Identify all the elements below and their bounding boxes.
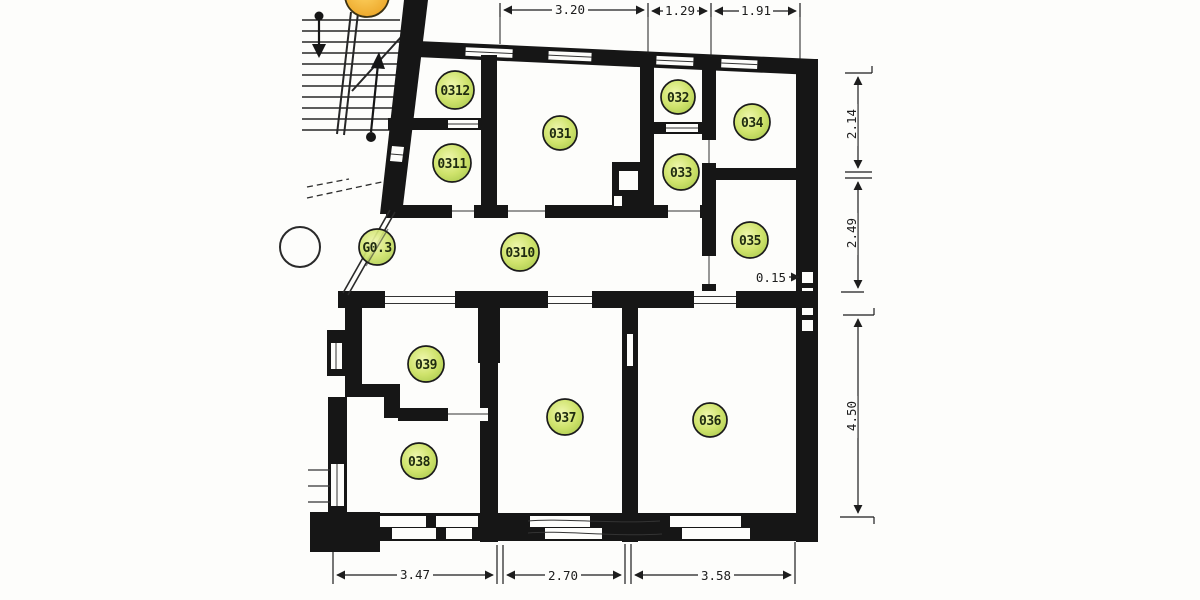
room-badge-034: 034: [734, 104, 770, 140]
wall-039-038: [398, 408, 498, 421]
dimension-bottom-2: 2.70: [548, 568, 578, 583]
room-badge-037: 037: [547, 399, 583, 435]
dimension-right-2: 2.49: [844, 218, 859, 248]
room-badge-g03: G0.3: [359, 229, 395, 266]
dimension-top-3: 1.91: [741, 3, 771, 18]
room-badge-text: 036: [699, 414, 722, 429]
room-badge-text: 035: [739, 234, 761, 249]
room-badge-text: 033: [670, 166, 692, 181]
dimension-wall-thickness: 0.15: [756, 270, 786, 285]
wall-033-034: [702, 59, 716, 293]
room-badge-text: 0312: [440, 84, 469, 99]
room-badge-text: 032: [667, 91, 689, 106]
wall-037-036: [622, 291, 638, 542]
wall-thickness-callout: 0.15: [756, 270, 799, 285]
stair-down-arrow: [312, 12, 326, 59]
room-badge-text: G0.3: [362, 241, 391, 256]
wall-031-032: [640, 57, 654, 205]
wall-corridor-bottom: [338, 291, 818, 308]
wall-left-lower-block: [327, 291, 400, 542]
wall-top-outer: [416, 41, 814, 75]
left-window-sill-lines: [308, 470, 330, 502]
wall-corridor-top: [386, 205, 716, 218]
room-badge-text: 0310: [505, 246, 535, 261]
wall-034-035: [716, 168, 796, 180]
dimension-bottom-3: 3.58: [701, 568, 731, 583]
room-badge-text: 0311: [437, 157, 467, 172]
floor-plan-scan: 3.20 1.29 1.91 2.14 2.49 4.50 0.15 3.47 …: [0, 0, 1200, 600]
room-badge-0311: 0311: [433, 144, 471, 182]
room-badge-033: 033: [663, 154, 699, 190]
wall-bottom-outer: [310, 512, 818, 552]
room-badge-038: 038: [401, 443, 437, 479]
wall-left-diagonal: [380, 0, 428, 214]
dimension-top-2: 1.29: [665, 3, 695, 18]
room-badge-036: 036: [693, 403, 727, 437]
room-badge-text: 037: [554, 411, 576, 426]
room-badge-text: 034: [741, 116, 764, 131]
room-badge-0312: 0312: [436, 71, 474, 109]
room-badge-0310: 0310: [501, 233, 539, 271]
room-badge-039: 039: [408, 346, 444, 382]
dimension-top-1: 3.20: [555, 2, 585, 17]
room-badge-text: 038: [408, 455, 431, 470]
wall-0311-031: [481, 55, 497, 214]
room-badge-035: 035: [732, 222, 768, 258]
dimension-right-3: 4.50: [844, 401, 859, 431]
dimension-right-1: 2.14: [844, 109, 859, 139]
dimension-bottom-1: 3.47: [400, 567, 430, 582]
under-stair-dashed-lines: [307, 179, 391, 198]
partial-circle-left-edge: [280, 227, 320, 267]
room-badge-031: 031: [543, 116, 577, 150]
room-badge-text: 039: [415, 358, 437, 373]
wall-0312-0311: [388, 118, 481, 130]
room-badge-text: 031: [549, 127, 572, 142]
floor-plan-svg: 3.20 1.29 1.91 2.14 2.49 4.50 0.15 3.47 …: [0, 0, 1200, 600]
room-badge-032: 032: [661, 80, 695, 114]
